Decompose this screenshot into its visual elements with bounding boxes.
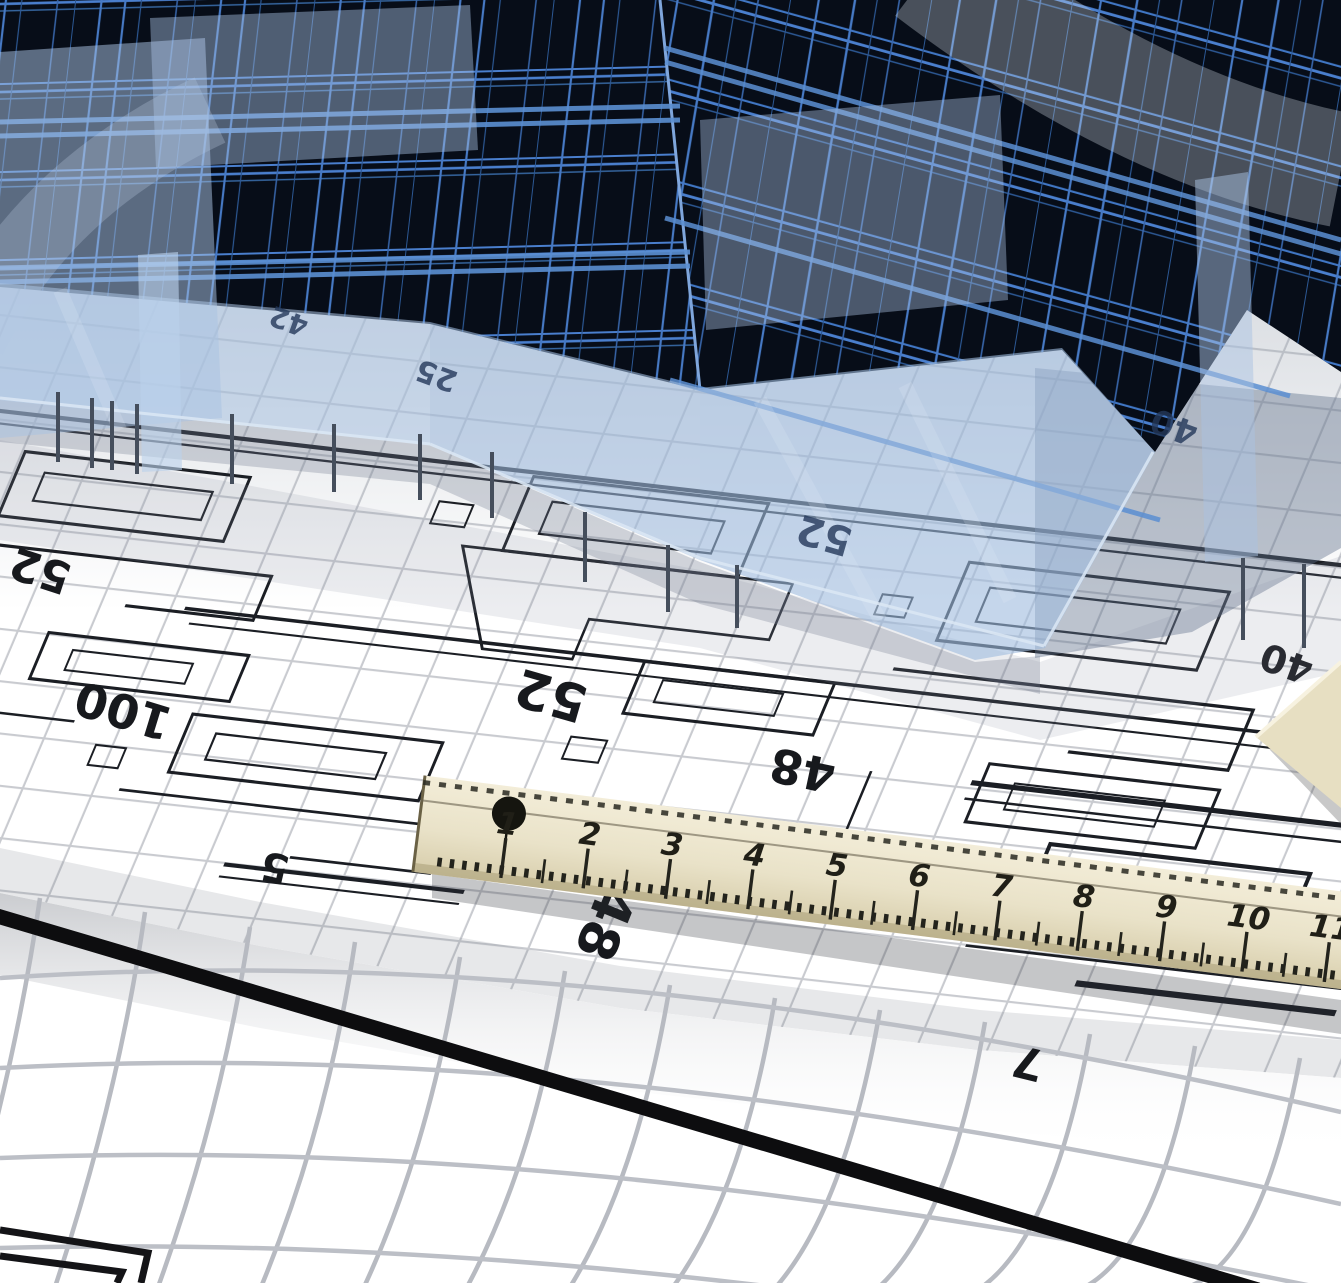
glass-fin-right (1195, 172, 1258, 562)
ruler-label-5: 5 (824, 847, 850, 885)
blueprint-scene: 52 100 52 48 5 48 40 (0, 0, 1341, 1283)
ruler-label-4: 4 (741, 836, 768, 875)
glass-panel-upper-left (150, 5, 478, 168)
ruler-label-10: 10 (1225, 897, 1272, 938)
ruler-label-1: 1 (495, 805, 521, 843)
ruler-label-3: 3 (659, 826, 685, 864)
scene-canvas: 52 100 52 48 5 48 40 (0, 0, 1341, 1283)
ruler-label-6: 6 (906, 857, 932, 895)
glass-fin-left (138, 252, 182, 472)
ruler-label-9: 9 (1153, 888, 1179, 926)
glass-panel-upper-center (700, 95, 1008, 330)
ruler-label-2: 2 (577, 816, 603, 854)
ruler-label-11: 11 (1307, 908, 1341, 949)
ruler-label-8: 8 (1071, 878, 1097, 916)
